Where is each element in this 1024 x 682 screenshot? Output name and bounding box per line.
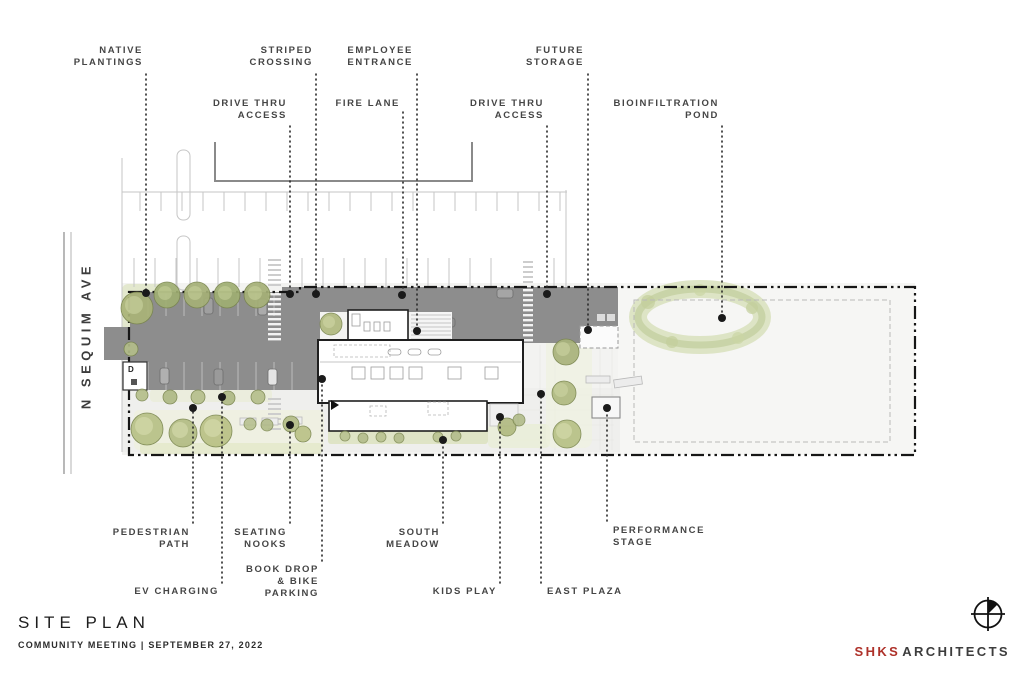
callout-book-drop-bike-parking: BOOK DROP & BIKE PARKING xyxy=(246,564,319,600)
shrub-icon xyxy=(163,390,177,404)
callout-fire-lane: FIRE LANE xyxy=(335,98,400,110)
brand-lockup: SHKSARCHITECTS xyxy=(855,644,1011,659)
callout-drive-thru-access-east: DRIVE THRU ACCESS xyxy=(470,98,544,122)
callout-performance-stage: PERFORMANCE STAGE xyxy=(613,525,705,549)
tree-icon xyxy=(124,342,138,356)
tree-icon xyxy=(553,420,581,448)
brand-name-secondary: ARCHITECTS xyxy=(902,644,1010,659)
tree-icon xyxy=(184,282,210,308)
book-drop-kiosk xyxy=(123,362,147,390)
tree-icon xyxy=(121,292,153,324)
brand-logo-icon xyxy=(971,597,1005,631)
shrub-icon xyxy=(136,389,148,401)
shrub-icon xyxy=(358,433,368,443)
shrub-icon xyxy=(451,431,461,441)
callout-seating-nooks: SEATING NOOKS xyxy=(234,527,287,551)
shrub-icon xyxy=(251,390,265,404)
shrub-icon xyxy=(513,414,525,426)
tree-icon xyxy=(553,339,579,365)
drive-thru-window-hatch xyxy=(410,312,452,342)
callout-drive-thru-access-west: DRIVE THRU ACCESS xyxy=(213,98,287,122)
svg-text:D: D xyxy=(128,365,134,374)
north-parking-rows xyxy=(122,150,567,290)
tree-icon xyxy=(154,282,180,308)
callout-bioinfiltration-pond: BIOINFILTRATION POND xyxy=(614,98,719,122)
tree-icon xyxy=(131,413,163,445)
street-name-label: N SEQUIM AVE xyxy=(79,234,94,438)
tree-icon xyxy=(320,313,342,335)
callout-ev-charging: EV CHARGING xyxy=(134,586,219,598)
site-plan-page: D xyxy=(0,0,1024,682)
shrub-icon xyxy=(376,432,386,442)
callout-striped-crossing: STRIPED CROSSING xyxy=(250,45,313,69)
callout-kids-play: KIDS PLAY xyxy=(433,586,497,598)
tree-icon xyxy=(200,415,232,447)
shrub-icon xyxy=(261,419,273,431)
tree-icon xyxy=(295,426,311,442)
title-block: SITE PLAN COMMUNITY MEETING | SEPTEMBER … xyxy=(18,613,264,650)
east-plaza-bench xyxy=(586,376,610,383)
shrub-icon xyxy=(394,433,404,443)
callout-pedestrian-path: PEDESTRIAN PATH xyxy=(113,527,190,551)
tree-icon xyxy=(244,282,270,308)
callout-south-meadow: SOUTH MEADOW xyxy=(386,527,440,551)
striped-crossing-east xyxy=(523,261,533,341)
existing-structure-outline xyxy=(215,142,472,181)
shrub-icon xyxy=(340,431,350,441)
callout-employee-entrance: EMPLOYEE ENTRANCE xyxy=(347,45,413,69)
callout-native-plantings: NATIVE PLANTINGS xyxy=(74,45,143,69)
shrub-icon xyxy=(244,418,256,430)
sheet-title: SITE PLAN xyxy=(18,613,264,633)
tree-icon xyxy=(552,381,576,405)
callout-east-plaza: EAST PLAZA xyxy=(547,586,623,598)
callout-future-storage: FUTURE STORAGE xyxy=(526,45,584,69)
brand-name-primary: SHKS xyxy=(855,644,901,659)
tree-icon xyxy=(214,282,240,308)
sheet-subtitle: COMMUNITY MEETING | SEPTEMBER 27, 2022 xyxy=(18,640,264,650)
shrub-icon xyxy=(191,390,205,404)
